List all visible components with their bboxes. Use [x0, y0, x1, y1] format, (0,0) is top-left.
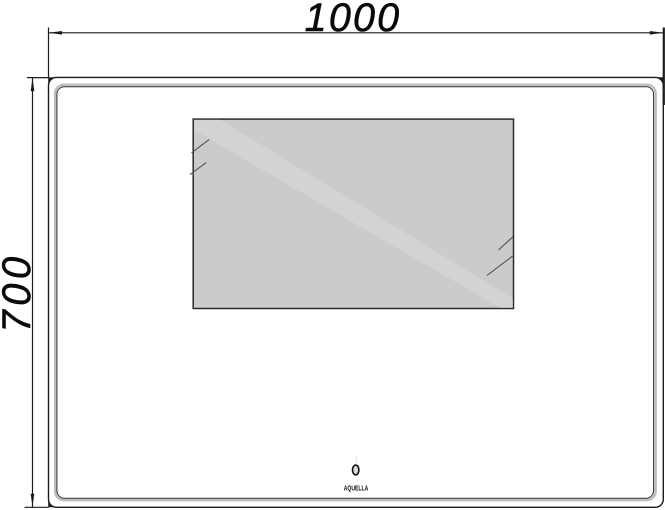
svg-text:700: 700 — [0, 252, 39, 332]
svg-text:AQUELLA: AQUELLA — [344, 483, 369, 492]
svg-text:1000: 1000 — [305, 0, 402, 40]
